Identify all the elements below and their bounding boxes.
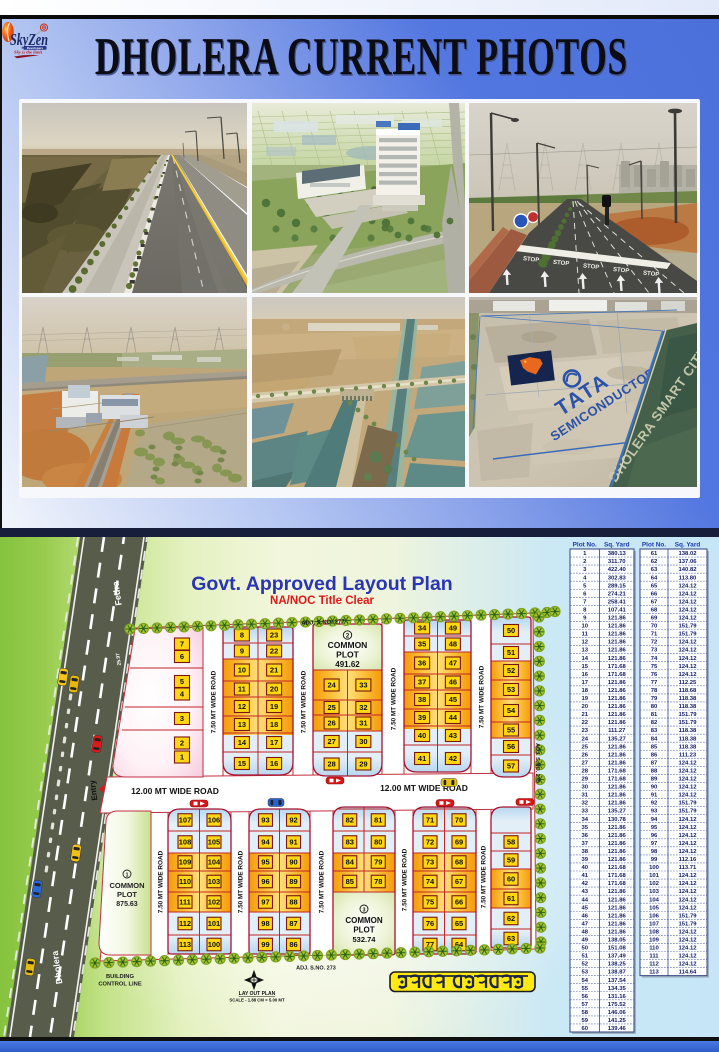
svg-text:31: 31: [359, 719, 367, 728]
svg-text:9: 9: [240, 647, 244, 656]
svg-text:102: 102: [649, 881, 660, 887]
svg-text:90: 90: [289, 858, 297, 867]
svg-text:82: 82: [346, 816, 354, 825]
svg-text:124.12: 124.12: [678, 954, 697, 960]
svg-text:171.68: 171.68: [608, 768, 627, 774]
svg-text:8: 8: [240, 631, 244, 640]
svg-text:121.86: 121.86: [608, 905, 627, 911]
svg-text:21: 21: [581, 712, 588, 718]
svg-text:65: 65: [651, 583, 658, 589]
svg-text:80: 80: [374, 838, 382, 847]
svg-text:48: 48: [581, 929, 588, 935]
svg-text:111.27: 111.27: [608, 728, 626, 734]
svg-text:124.12: 124.12: [678, 616, 697, 622]
svg-text:103: 103: [649, 889, 660, 895]
svg-text:33: 33: [581, 809, 588, 815]
svg-text:3: 3: [362, 908, 365, 914]
svg-text:53: 53: [581, 970, 588, 976]
svg-text:45: 45: [449, 695, 457, 704]
svg-text:141.25: 141.25: [608, 1018, 627, 1024]
svg-text:121.86: 121.86: [608, 656, 627, 662]
svg-text:91: 91: [289, 838, 297, 847]
svg-text:27: 27: [327, 737, 335, 746]
svg-text:105: 105: [649, 905, 660, 911]
svg-text:10: 10: [581, 624, 588, 630]
svg-text:58: 58: [581, 1010, 588, 1016]
svg-text:Plot No.: Plot No.: [642, 542, 666, 549]
svg-text:124.12: 124.12: [678, 607, 697, 613]
svg-text:121.86: 121.86: [608, 841, 627, 847]
svg-text:118.38: 118.38: [679, 744, 697, 750]
svg-text:7.50 MT WIDE ROAD: 7.50 MT WIDE ROAD: [478, 665, 485, 728]
svg-text:380.13: 380.13: [608, 551, 627, 557]
svg-text:124.12: 124.12: [678, 873, 697, 879]
svg-text:121.86: 121.86: [608, 704, 627, 710]
svg-text:81: 81: [651, 712, 658, 718]
svg-text:34: 34: [581, 817, 588, 823]
svg-text:124.12: 124.12: [678, 648, 697, 654]
svg-text:14: 14: [238, 738, 247, 747]
svg-text:16: 16: [270, 759, 278, 768]
svg-text:171.68: 171.68: [608, 873, 627, 879]
svg-text:53: 53: [507, 685, 515, 694]
svg-text:124.12: 124.12: [678, 946, 697, 952]
svg-text:86: 86: [651, 752, 658, 758]
svg-text:30: 30: [581, 785, 588, 791]
svg-text:55: 55: [507, 726, 515, 735]
svg-text:121.86: 121.86: [608, 632, 627, 638]
svg-text:101: 101: [649, 873, 660, 879]
svg-text:78: 78: [374, 877, 382, 886]
svg-text:171.68: 171.68: [608, 672, 627, 678]
svg-text:50: 50: [507, 626, 515, 635]
svg-text:70: 70: [651, 624, 658, 630]
svg-text:107.41: 107.41: [608, 607, 627, 613]
svg-text:124.12: 124.12: [678, 841, 697, 847]
svg-text:54: 54: [581, 978, 588, 984]
svg-text:15: 15: [238, 759, 246, 768]
svg-text:5: 5: [180, 677, 184, 686]
svg-text:171.68: 171.68: [608, 777, 627, 783]
svg-text:121.86: 121.86: [608, 825, 627, 831]
svg-text:67: 67: [455, 877, 463, 886]
svg-text:99: 99: [651, 857, 658, 863]
svg-text:121.86: 121.86: [608, 680, 627, 686]
svg-text:111: 111: [179, 898, 191, 907]
svg-text:ADJ. S.NO. 275: ADJ. S.NO. 275: [534, 743, 540, 783]
svg-text:54: 54: [507, 706, 516, 715]
svg-text:875.63: 875.63: [116, 901, 138, 908]
svg-text:68: 68: [455, 858, 463, 867]
svg-text:121.86: 121.86: [608, 760, 627, 766]
svg-text:121.86: 121.86: [608, 648, 627, 654]
svg-text:10: 10: [238, 666, 246, 675]
svg-text:32: 32: [581, 801, 588, 807]
svg-text:38: 38: [581, 849, 588, 855]
svg-text:121.86: 121.86: [608, 929, 627, 935]
svg-text:48: 48: [449, 640, 457, 649]
svg-text:12: 12: [581, 640, 588, 646]
svg-text:130.78: 130.78: [608, 817, 627, 823]
svg-text:121.86: 121.86: [608, 640, 627, 646]
svg-text:13: 13: [238, 720, 246, 729]
svg-text:18: 18: [270, 720, 278, 729]
svg-text:124.12: 124.12: [678, 777, 697, 783]
svg-text:124.12: 124.12: [678, 656, 697, 662]
svg-text:80: 80: [651, 704, 658, 710]
svg-text:113: 113: [649, 970, 659, 976]
svg-text:124.12: 124.12: [678, 849, 697, 855]
svg-text:124.12: 124.12: [678, 929, 697, 935]
svg-text:72: 72: [426, 838, 434, 847]
svg-text:77: 77: [651, 680, 658, 686]
svg-text:7.50 MT WIDE ROAD: 7.50 MT WIDE ROAD: [300, 670, 307, 733]
svg-text:PLOT: PLOT: [353, 926, 374, 935]
svg-text:36: 36: [418, 659, 426, 668]
svg-text:140.82: 140.82: [678, 567, 697, 573]
svg-text:96: 96: [261, 877, 269, 886]
svg-text:111: 111: [649, 954, 659, 960]
svg-text:121.86: 121.86: [608, 793, 627, 799]
svg-text:44: 44: [449, 713, 458, 722]
svg-text:121.86: 121.86: [608, 921, 627, 927]
svg-text:CONTROL LINE: CONTROL LINE: [98, 982, 142, 988]
svg-text:18: 18: [581, 688, 588, 694]
svg-text:121.86: 121.86: [608, 833, 627, 839]
svg-text:7.50 MT WIDE ROAD: 7.50 MT WIDE ROAD: [237, 850, 244, 913]
svg-text:112: 112: [649, 962, 659, 968]
svg-text:52: 52: [581, 962, 588, 968]
svg-text:113.80: 113.80: [679, 575, 697, 581]
svg-text:289.15: 289.15: [608, 583, 627, 589]
svg-text:85: 85: [651, 744, 658, 750]
svg-text:29: 29: [359, 760, 367, 769]
svg-text:151.08: 151.08: [608, 946, 627, 952]
svg-text:151.79: 151.79: [678, 809, 697, 815]
svg-text:59: 59: [507, 856, 515, 865]
svg-text:11: 11: [238, 685, 246, 694]
svg-text:121.68: 121.68: [608, 865, 627, 871]
svg-text:121.86: 121.86: [608, 624, 627, 630]
svg-text:41: 41: [581, 873, 588, 879]
svg-text:7.50 MT WIDE ROAD: 7.50 MT WIDE ROAD: [480, 845, 487, 908]
svg-text:422.40: 422.40: [608, 567, 627, 573]
svg-text:46: 46: [449, 678, 457, 687]
svg-text:28: 28: [327, 760, 335, 769]
svg-text:114.64: 114.64: [679, 970, 697, 976]
svg-text:24: 24: [581, 736, 588, 742]
svg-text:113.71: 113.71: [679, 865, 697, 871]
svg-text:104: 104: [649, 897, 660, 903]
svg-text:3: 3: [180, 714, 184, 723]
svg-text:6: 6: [180, 652, 184, 661]
svg-text:66: 66: [651, 591, 658, 597]
svg-text:51: 51: [581, 954, 588, 960]
svg-text:124.12: 124.12: [678, 583, 697, 589]
svg-text:87: 87: [651, 760, 658, 766]
svg-text:98: 98: [651, 849, 658, 855]
svg-text:49: 49: [581, 938, 588, 944]
svg-text:97: 97: [261, 898, 269, 907]
svg-text:88: 88: [289, 898, 297, 907]
svg-text:124.12: 124.12: [678, 825, 697, 831]
svg-text:112.16: 112.16: [679, 857, 697, 863]
svg-text:134.35: 134.35: [608, 986, 627, 992]
svg-text:137.49: 137.49: [608, 954, 627, 960]
svg-text:35: 35: [581, 825, 588, 831]
svg-text:112.25: 112.25: [679, 680, 697, 686]
svg-text:67: 67: [651, 599, 658, 605]
svg-text:81: 81: [374, 816, 382, 825]
svg-text:7.50 MT WIDE ROAD: 7.50 MT WIDE ROAD: [157, 850, 164, 913]
svg-text:121.86: 121.86: [608, 889, 627, 895]
svg-text:41: 41: [418, 754, 426, 763]
svg-text:52: 52: [507, 666, 515, 675]
svg-text:47: 47: [581, 921, 588, 927]
svg-text:107: 107: [649, 921, 660, 927]
svg-text:78: 78: [651, 688, 658, 694]
svg-text:98: 98: [261, 919, 269, 928]
svg-text:7: 7: [180, 640, 184, 649]
svg-text:124.12: 124.12: [678, 768, 697, 774]
svg-text:COMMON: COMMON: [345, 916, 383, 925]
svg-text:22: 22: [270, 647, 278, 656]
svg-text:36: 36: [581, 833, 588, 839]
svg-text:171.68: 171.68: [608, 881, 627, 887]
svg-text:76: 76: [651, 672, 658, 678]
svg-text:124.12: 124.12: [678, 938, 697, 944]
svg-text:73: 73: [651, 648, 658, 654]
svg-text:61: 61: [651, 551, 658, 557]
svg-text:138.25: 138.25: [608, 962, 627, 968]
svg-text:106: 106: [649, 913, 660, 919]
svg-text:15: 15: [581, 664, 588, 670]
svg-text:64: 64: [651, 575, 658, 581]
svg-text:56: 56: [581, 994, 588, 1000]
svg-text:124.12: 124.12: [678, 599, 697, 605]
svg-text:42: 42: [449, 754, 457, 763]
svg-text:106: 106: [208, 816, 221, 825]
svg-text:21: 21: [270, 666, 278, 675]
svg-text:124.12: 124.12: [678, 640, 697, 646]
svg-text:27: 27: [581, 760, 588, 766]
svg-text:38: 38: [418, 695, 426, 704]
svg-text:70: 70: [455, 816, 463, 825]
svg-text:124.12: 124.12: [678, 793, 697, 799]
svg-text:79: 79: [374, 858, 382, 867]
svg-text:68: 68: [651, 607, 658, 613]
svg-text:12: 12: [238, 702, 246, 711]
svg-text:74: 74: [426, 877, 435, 886]
svg-text:40: 40: [581, 865, 588, 871]
svg-text:121.86: 121.86: [608, 696, 627, 702]
svg-text:75: 75: [426, 898, 434, 907]
svg-text:146.06: 146.06: [608, 1010, 627, 1016]
svg-text:Sq. Yard: Sq. Yard: [675, 542, 701, 549]
svg-text:131.16: 131.16: [608, 994, 627, 1000]
svg-text:44: 44: [581, 897, 588, 903]
svg-text:COMMON: COMMON: [328, 640, 368, 650]
svg-text:124.12: 124.12: [678, 905, 697, 911]
svg-text:20: 20: [270, 685, 278, 694]
svg-text:89: 89: [289, 877, 297, 886]
svg-text:49: 49: [449, 624, 457, 633]
svg-text:57: 57: [507, 762, 515, 771]
svg-text:LAY OUT PLAN: LAY OUT PLAN: [239, 991, 276, 997]
svg-text:Sq. Yard: Sq. Yard: [604, 542, 630, 549]
svg-text:43: 43: [449, 731, 457, 740]
svg-text:72: 72: [651, 640, 658, 646]
svg-text:491.62: 491.62: [335, 660, 360, 669]
svg-text:55: 55: [581, 986, 588, 992]
svg-text:22: 22: [581, 720, 588, 726]
svg-text:124.12: 124.12: [678, 881, 697, 887]
svg-text:121.86: 121.86: [608, 857, 627, 863]
svg-text:23: 23: [581, 728, 588, 734]
svg-text:79: 79: [651, 696, 658, 702]
svg-text:30: 30: [359, 737, 367, 746]
svg-text:113: 113: [179, 940, 191, 949]
svg-text:118.38: 118.38: [679, 728, 697, 734]
svg-text:35: 35: [418, 640, 426, 649]
svg-text:60: 60: [507, 875, 515, 884]
svg-text:25: 25: [581, 744, 588, 750]
svg-text:43: 43: [581, 889, 588, 895]
svg-text:93: 93: [651, 809, 658, 815]
svg-text:25: 25: [327, 703, 335, 712]
svg-text:151.79: 151.79: [678, 624, 697, 630]
svg-text:33: 33: [359, 681, 367, 690]
svg-text:138.87: 138.87: [608, 970, 627, 976]
svg-text:7.50 MT WIDE ROAD: 7.50 MT WIDE ROAD: [210, 670, 217, 733]
svg-text:100: 100: [649, 865, 660, 871]
svg-text:137.06: 137.06: [678, 559, 697, 565]
svg-text:28: 28: [581, 768, 588, 774]
svg-text:Plot No.: Plot No.: [573, 542, 597, 549]
svg-text:175.52: 175.52: [608, 1002, 627, 1008]
svg-text:1: 1: [180, 753, 184, 762]
svg-text:7.50 MT WIDE ROAD: 7.50 MT WIDE ROAD: [390, 667, 397, 730]
svg-text:47: 47: [449, 659, 457, 668]
svg-text:24: 24: [327, 681, 336, 690]
svg-text:121.86: 121.86: [608, 785, 627, 791]
svg-text:75: 75: [651, 664, 658, 670]
svg-text:111.23: 111.23: [679, 752, 697, 758]
svg-text:112: 112: [179, 919, 191, 928]
svg-text:124.12: 124.12: [678, 889, 697, 895]
svg-text:124.12: 124.12: [678, 785, 697, 791]
svg-text:16: 16: [581, 672, 588, 678]
svg-text:87: 87: [289, 919, 297, 928]
svg-text:101: 101: [208, 919, 221, 928]
svg-text:124.12: 124.12: [678, 591, 697, 597]
svg-text:13: 13: [581, 648, 588, 654]
svg-text:58: 58: [507, 838, 515, 847]
svg-text:274.21: 274.21: [608, 591, 627, 597]
svg-text:42: 42: [581, 881, 588, 887]
svg-text:ADJ. S.NO. 273: ADJ. S.NO. 273: [296, 966, 336, 972]
svg-text:PLOT: PLOT: [117, 890, 137, 899]
svg-text:109: 109: [179, 858, 192, 867]
svg-text:109: 109: [649, 938, 660, 944]
svg-text:124.12: 124.12: [678, 962, 697, 968]
svg-text:93: 93: [261, 816, 269, 825]
svg-text:12.00 MT WIDE ROAD: 12.00 MT WIDE ROAD: [131, 786, 219, 796]
svg-text:99: 99: [261, 940, 269, 949]
svg-text:66: 66: [455, 898, 463, 907]
svg-text:103: 103: [208, 877, 221, 886]
svg-text:151.79: 151.79: [678, 801, 697, 807]
svg-text:84: 84: [651, 736, 658, 742]
svg-text:95: 95: [651, 825, 658, 831]
svg-text:124.12: 124.12: [678, 664, 697, 670]
svg-text:65: 65: [455, 919, 463, 928]
svg-text:82: 82: [651, 720, 658, 726]
svg-text:110: 110: [649, 946, 659, 952]
svg-text:85: 85: [346, 877, 354, 886]
svg-text:20: 20: [581, 704, 588, 710]
svg-text:90: 90: [651, 785, 658, 791]
svg-text:37: 37: [581, 841, 588, 847]
svg-text:26: 26: [581, 752, 588, 758]
svg-text:39: 39: [581, 857, 588, 863]
svg-text:84: 84: [346, 858, 355, 867]
svg-text:124.12: 124.12: [678, 760, 697, 766]
svg-text:311.70: 311.70: [608, 559, 626, 565]
svg-text:14: 14: [581, 656, 588, 662]
svg-text:124.12: 124.12: [678, 817, 697, 823]
svg-text:17: 17: [581, 680, 588, 686]
svg-text:73: 73: [426, 858, 434, 867]
svg-text:69: 69: [651, 616, 658, 622]
svg-text:100: 100: [208, 940, 221, 949]
svg-text:102: 102: [208, 898, 221, 907]
svg-text:135.27: 135.27: [608, 809, 627, 815]
svg-text:139.46: 139.46: [608, 1026, 627, 1032]
svg-text:151.79: 151.79: [678, 720, 697, 726]
svg-text:124.12: 124.12: [678, 672, 697, 678]
svg-text:62: 62: [651, 559, 658, 565]
svg-text:94: 94: [651, 817, 658, 823]
svg-text:91: 91: [651, 793, 658, 799]
svg-text:108: 108: [179, 838, 192, 847]
svg-text:118.68: 118.68: [679, 688, 697, 694]
svg-text:124.12: 124.12: [678, 897, 697, 903]
svg-text:19: 19: [581, 696, 588, 702]
svg-text:121.86: 121.86: [608, 744, 627, 750]
svg-text:121.86: 121.86: [608, 897, 627, 903]
svg-text:37: 37: [418, 678, 426, 687]
svg-text:121.86: 121.86: [608, 720, 627, 726]
svg-text:59: 59: [581, 1018, 588, 1024]
svg-text:92: 92: [651, 801, 658, 807]
svg-text:124.12: 124.12: [678, 833, 697, 839]
svg-text:31: 31: [581, 793, 588, 799]
svg-text:63: 63: [651, 567, 658, 573]
svg-text:76: 76: [426, 919, 434, 928]
svg-text:71: 71: [651, 632, 658, 638]
svg-text:118.38: 118.38: [679, 704, 697, 710]
svg-text:121.86: 121.86: [608, 712, 627, 718]
svg-text:Govt. Approved Layout Plan: Govt. Approved Layout Plan: [191, 573, 452, 595]
svg-text:60: 60: [581, 1026, 588, 1032]
svg-text:108: 108: [649, 929, 660, 935]
svg-text:69: 69: [455, 838, 463, 847]
svg-text:94: 94: [261, 838, 270, 847]
svg-text:302.83: 302.83: [608, 575, 627, 581]
svg-text:57: 57: [581, 1002, 588, 1008]
svg-text:63: 63: [507, 934, 515, 943]
